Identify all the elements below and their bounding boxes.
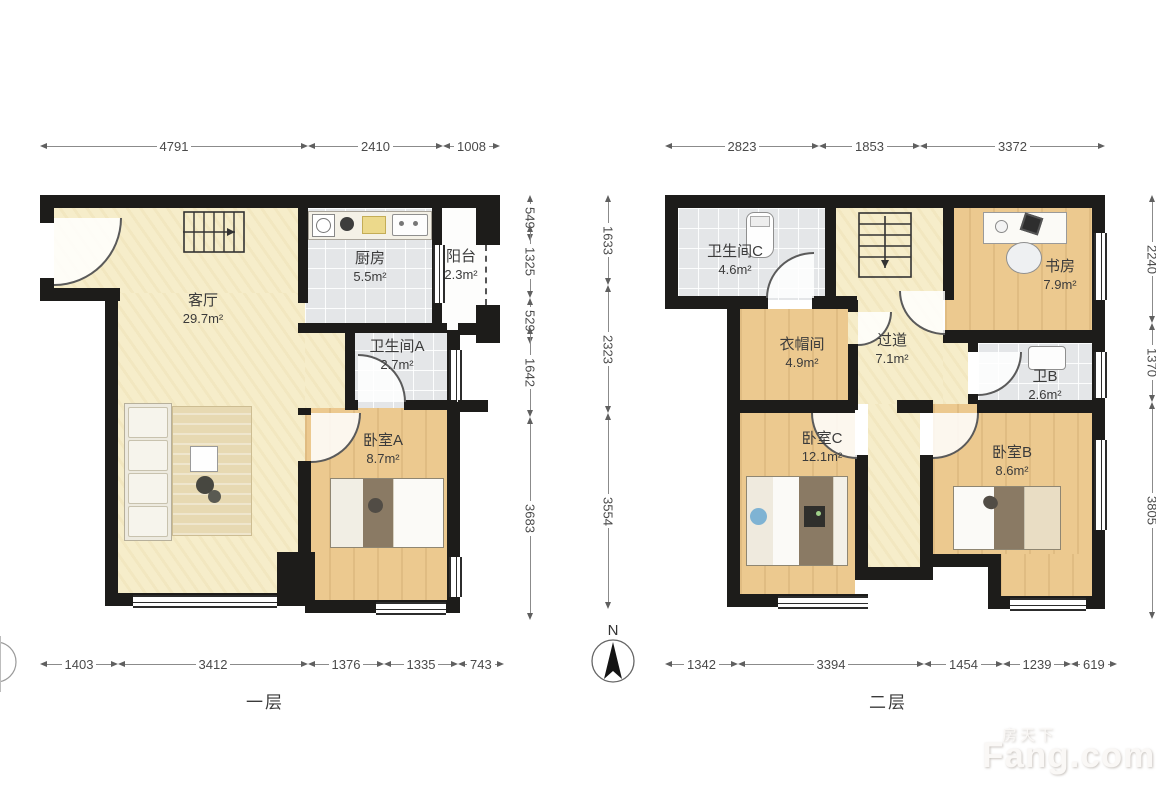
cutting-board-icon xyxy=(362,216,386,234)
dim-f2-right-3: 3805 xyxy=(1142,402,1156,619)
floor2-label: 二层 xyxy=(828,688,948,713)
bed-cushion xyxy=(368,498,383,513)
room-hall-lower xyxy=(868,404,920,567)
wall-segment xyxy=(298,323,447,333)
dim-f2-top-2: 1853 xyxy=(819,138,920,154)
kitchen-sink-icon xyxy=(392,214,428,236)
bed-B xyxy=(953,486,1061,550)
room-label-kitchen: 厨房 5.5m² xyxy=(320,250,420,285)
window xyxy=(1094,440,1107,530)
dim-f2-bot-1: 1342 xyxy=(665,656,738,672)
wall-segment xyxy=(848,300,858,312)
room-label-study: 书房 7.9m² xyxy=(1010,258,1110,293)
dim-f2-right-2: 1370 xyxy=(1142,323,1156,402)
wall-segment xyxy=(897,400,933,413)
dim-f1-bot-2: 3412 xyxy=(118,656,308,672)
compass-icon xyxy=(590,638,636,684)
coffee-table-small xyxy=(208,490,221,503)
room-label-hall: 过道 7.1m² xyxy=(842,332,942,367)
dim-f1-bot-5: 743 xyxy=(458,656,500,672)
dim-f1-bot-4: 1335 xyxy=(384,656,458,672)
dim-f1-bot-1: 1403 xyxy=(40,656,118,672)
wall-segment xyxy=(665,195,1105,208)
window xyxy=(449,557,462,597)
bed-blanket xyxy=(363,479,393,547)
room-hall-sub xyxy=(943,343,968,404)
dim-f1-right-3: 529 xyxy=(520,298,540,327)
wall-segment xyxy=(727,296,740,606)
bathB-sink-icon xyxy=(1028,346,1066,370)
room-label-bedB: 卧室B 8.6m² xyxy=(962,444,1062,479)
edge-artifact-circle xyxy=(0,640,18,684)
wall-segment xyxy=(665,195,678,309)
floorplan-image: 客厅 29.7m² 厨房 5.5m² 阳台 2.3m² 卫生间A 2.7m² 卧… xyxy=(0,0,1156,794)
staircase-down-icon xyxy=(858,212,912,278)
dim-f2-bot-2: 3394 xyxy=(738,656,924,672)
bed-cushion-blue xyxy=(750,508,767,525)
wall-segment xyxy=(665,296,768,309)
wall-segment xyxy=(298,461,311,555)
room-label-living: 客厅 29.7m² xyxy=(153,292,253,327)
dim-f1-bot-3: 1376 xyxy=(308,656,384,672)
wall-segment xyxy=(40,195,488,208)
floor1-label: 一层 xyxy=(205,688,325,713)
bed-mattress xyxy=(773,477,799,565)
window xyxy=(376,602,446,615)
room-bedB-ext-floor xyxy=(1000,554,1092,596)
wall-segment xyxy=(298,208,308,303)
wall-segment xyxy=(943,208,954,300)
dim-f1-right-1: 549 xyxy=(520,195,540,225)
bed-blanket xyxy=(994,487,1024,549)
dim-f2-top-1: 2823 xyxy=(665,138,819,154)
wall-segment xyxy=(968,343,978,352)
wall-segment xyxy=(825,208,836,300)
desk-plant-icon xyxy=(995,220,1008,233)
room-label-bedC: 卧室C 12.1m² xyxy=(772,430,872,465)
bed-mattress xyxy=(393,479,444,547)
wall-segment xyxy=(277,552,315,606)
room-label-cloak: 衣帽间 4.9m² xyxy=(752,336,852,371)
watermark-brand-en: Fang.com xyxy=(982,736,1155,776)
dim-f1-top-3: 1008 xyxy=(443,138,500,154)
dim-f2-bot-4: 1239 xyxy=(1003,656,1071,672)
dim-f2-bot-3: 1454 xyxy=(924,656,1003,672)
bed-runner xyxy=(833,477,848,565)
wall-segment xyxy=(943,330,1105,343)
compass-north-label: N xyxy=(588,622,638,639)
dim-f2-left-3: 3554 xyxy=(598,413,618,609)
staircase-up-icon xyxy=(183,211,245,253)
side-table xyxy=(190,446,218,472)
washer-drum-icon xyxy=(316,218,331,233)
wall-segment xyxy=(855,567,933,580)
dim-f1-right-2: 1325 xyxy=(520,225,540,298)
wall-segment xyxy=(920,455,933,567)
room-label-bedA: 卧室A 8.7m² xyxy=(333,432,433,467)
bed-pillows xyxy=(331,479,364,547)
dim-f1-right-4: 1642 xyxy=(520,327,540,417)
dim-f1-top-2: 2410 xyxy=(308,138,443,154)
faucet-dot xyxy=(413,221,418,226)
window xyxy=(1094,352,1107,398)
wall-segment xyxy=(40,195,54,223)
window xyxy=(449,350,462,402)
stove-burner-icon xyxy=(340,217,354,231)
wall-segment xyxy=(476,195,500,245)
dim-f2-top-3: 3372 xyxy=(920,138,1105,154)
room-label-bathC: 卫生间C 4.6m² xyxy=(685,243,785,278)
dim-f1-top-1: 4791 xyxy=(40,138,308,154)
bed-tv-icon xyxy=(804,506,825,527)
wall-segment xyxy=(458,323,488,335)
sofa xyxy=(124,403,172,541)
bed-pillows xyxy=(1024,487,1061,549)
dim-f2-right-1: 2240 xyxy=(1142,195,1156,323)
room-label-balcony: 阳台 2.3m² xyxy=(432,248,490,283)
wall-segment xyxy=(404,400,457,410)
wall-segment xyxy=(458,400,488,412)
dim-f2-bot-5: 619 xyxy=(1071,656,1105,672)
wall-segment xyxy=(105,288,118,606)
room-label-bathB: 卫B 2.6m² xyxy=(995,368,1095,403)
wall-segment xyxy=(298,408,311,415)
wall-segment xyxy=(727,400,855,413)
bed-A xyxy=(330,478,444,548)
room-label-bathA: 卫生间A 2.7m² xyxy=(347,338,447,373)
bed-tv-dot xyxy=(816,511,821,516)
window xyxy=(1010,598,1086,611)
wall-segment xyxy=(345,400,358,410)
edge-artifact-line xyxy=(0,636,1,692)
window xyxy=(778,596,868,609)
dim-f2-left-2: 2323 xyxy=(598,285,618,413)
dim-f1-right-5: 3683 xyxy=(520,417,540,620)
dim-f2-left-1: 1633 xyxy=(598,195,618,285)
faucet-dot xyxy=(399,221,404,226)
window xyxy=(133,595,277,608)
wall-segment xyxy=(855,455,868,574)
